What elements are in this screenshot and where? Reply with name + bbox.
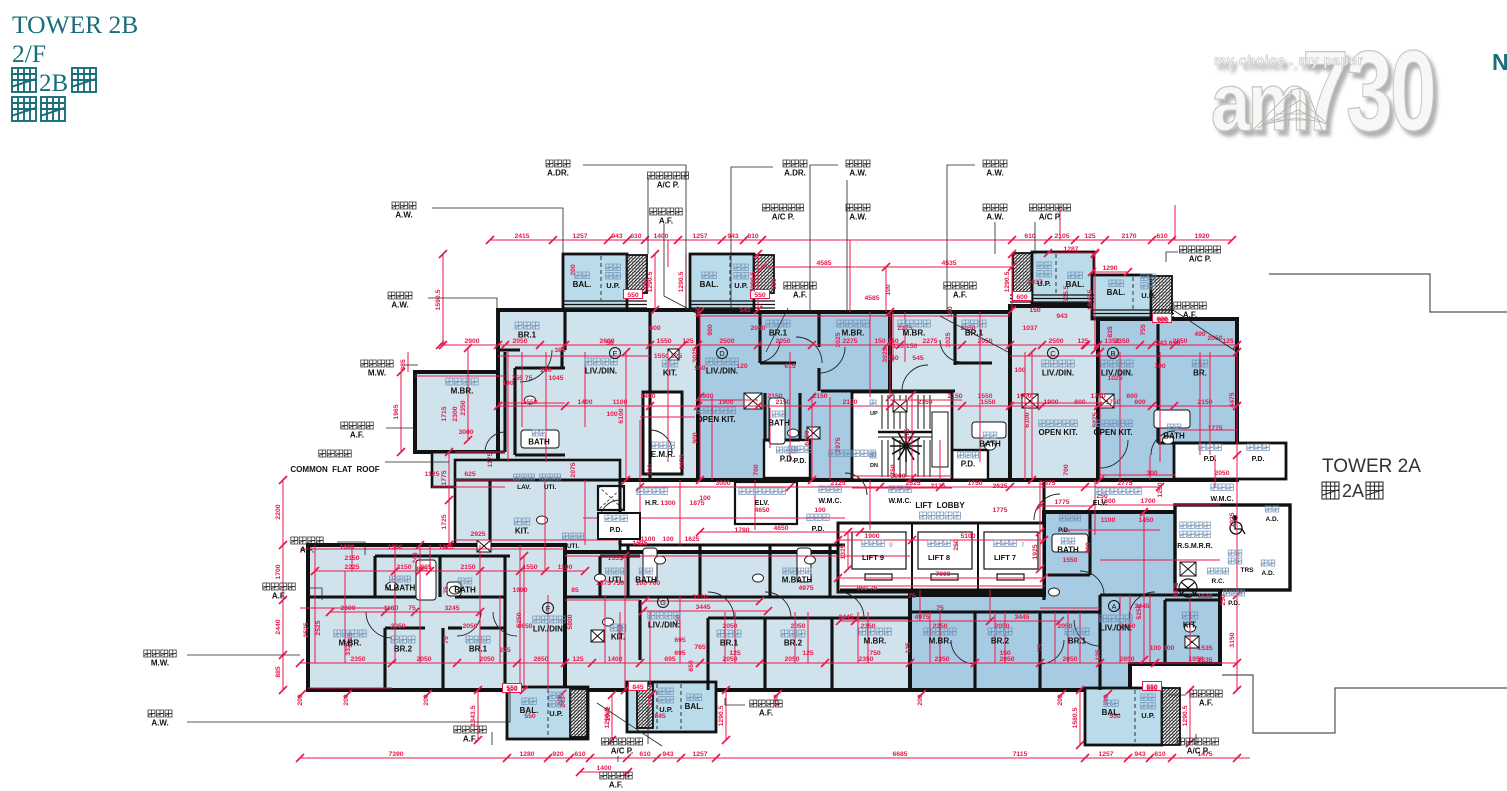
svg-text:A.W.: A.W. [849,213,866,222]
svg-text:2150: 2150 [775,399,790,406]
svg-text:610: 610 [747,233,759,240]
svg-text:TOWER 2B: TOWER 2B [12,10,138,39]
svg-text:1100: 1100 [1101,517,1116,524]
svg-text:1580.5: 1580.5 [1072,707,1079,728]
svg-text:ELV.: ELV. [755,500,769,507]
svg-text:B: B [1110,349,1115,358]
svg-text:KIT.: KIT. [515,527,529,536]
svg-text:BR.: BR. [1193,369,1207,378]
svg-text:100: 100 [1014,367,1026,374]
svg-text:2050: 2050 [750,325,765,332]
svg-text:A/C P.: A/C P. [1189,255,1212,264]
svg-text:550: 550 [627,292,639,299]
svg-text:P.D.: P.D. [1228,600,1240,607]
svg-text:UP: UP [870,411,878,417]
svg-text:1280: 1280 [519,751,534,758]
svg-text:BR.1: BR.1 [518,331,537,340]
svg-text:700: 700 [753,464,760,476]
svg-text:4650: 4650 [754,507,769,514]
svg-text:200: 200 [343,694,350,706]
svg-text:8: 8 [955,542,959,549]
svg-text:75: 75 [408,605,416,612]
svg-text:2650: 2650 [517,623,532,630]
svg-text:2350: 2350 [460,400,467,415]
svg-text:2500: 2500 [719,338,734,345]
svg-text:1920: 1920 [1194,233,1209,240]
svg-text:P.D.: P.D. [794,458,807,465]
svg-text:1965: 1965 [393,404,400,419]
svg-text:A.F.: A.F. [1199,699,1213,708]
svg-text:1290.5: 1290.5 [718,705,725,726]
svg-text:1287: 1287 [1063,246,1078,253]
svg-text:2350: 2350 [1114,338,1129,345]
svg-text:UTI.: UTI. [608,576,623,585]
svg-text:610: 610 [574,751,586,758]
svg-text:M.BR.: M.BR. [451,387,474,396]
svg-text:85: 85 [571,587,579,594]
svg-text:2975: 2975 [679,454,686,469]
svg-text:ELV.: ELV. [1093,500,1107,507]
svg-text:1550: 1550 [1062,557,1077,564]
svg-text:125: 125 [729,650,741,657]
svg-text:N: N [1492,49,1507,75]
svg-text:4650: 4650 [773,525,788,532]
svg-text:BR.1: BR.1 [469,645,488,654]
svg-text:A.F.: A.F. [272,592,286,601]
svg-text:COMMON FLAT ROOF: COMMON FLAT ROOF [290,465,379,474]
svg-text:BAL.: BAL. [700,280,719,289]
svg-text:UTI.: UTI. [544,484,556,491]
svg-text:LIV./DIN.: LIV./DIN. [585,367,617,376]
svg-text:BAL.: BAL. [1066,280,1085,289]
svg-text:1257: 1257 [572,233,587,240]
svg-text:1450: 1450 [1138,517,1153,524]
svg-text:P.D.: P.D. [1058,527,1070,534]
svg-text:A.W.: A.W. [395,211,412,220]
svg-text:200: 200 [297,694,304,706]
svg-text:M.BATH: M.BATH [782,576,813,585]
svg-text:2050: 2050 [1062,656,1077,663]
svg-text:1700: 1700 [275,564,282,579]
svg-text:1257: 1257 [1098,751,1113,758]
svg-text:2150: 2150 [396,564,411,571]
svg-text:1700: 1700 [1140,498,1155,505]
svg-text:1750: 1750 [967,480,982,487]
svg-text:7: 7 [1021,542,1025,549]
svg-text:625: 625 [464,471,476,478]
svg-text:960 75: 960 75 [857,585,878,592]
svg-text:A/C P.: A/C P. [657,181,680,190]
svg-text:BATH: BATH [454,586,476,595]
svg-text:2050: 2050 [999,656,1014,663]
svg-text:100: 100 [947,306,954,318]
svg-text:75: 75 [936,605,944,612]
svg-text:M.BR.: M.BR. [929,637,952,646]
svg-text:M.W.: M.W. [368,369,386,378]
svg-text:1500: 1500 [387,544,402,551]
svg-text:943: 943 [1056,313,1068,320]
svg-text:1775: 1775 [992,507,1007,514]
svg-text:1037: 1037 [1022,325,1037,332]
svg-text:200: 200 [570,264,577,276]
svg-text:1300: 1300 [660,500,675,507]
svg-text:2300: 2300 [452,406,459,421]
svg-text:900: 900 [692,432,699,444]
svg-text:BAL.: BAL. [573,280,592,289]
svg-text:200: 200 [647,694,654,706]
svg-text:6100: 6100 [1024,412,1031,427]
svg-text:550: 550 [694,365,706,372]
svg-text:1900: 1900 [698,393,713,400]
svg-text:4585: 4585 [816,260,831,267]
svg-text:243: 243 [412,552,419,564]
svg-text:2150: 2150 [812,393,827,400]
svg-text:2050: 2050 [722,656,737,663]
svg-text:C: C [1050,349,1056,358]
svg-text:100: 100 [506,686,518,693]
svg-text:150: 150 [874,338,886,345]
svg-text:125: 125 [682,338,694,345]
svg-text:G: G [660,598,666,607]
svg-text:1257: 1257 [692,233,707,240]
svg-text:2150: 2150 [947,393,962,400]
svg-text:2650: 2650 [1119,656,1134,663]
svg-text:BR.2: BR.2 [991,637,1010,646]
svg-text:2415: 2415 [514,233,529,240]
svg-text:2500: 2500 [1048,338,1063,345]
svg-text:1780: 1780 [734,527,749,534]
svg-text:2440: 2440 [275,619,282,634]
svg-text:am: am [1211,57,1308,148]
svg-text:U.P.: U.P. [606,281,620,290]
svg-text:TRS: TRS [1241,567,1255,574]
svg-text:7115: 7115 [1013,751,1028,758]
svg-text:2170: 2170 [1121,233,1136,240]
svg-text:600: 600 [1134,399,1146,406]
svg-text:BATH: BATH [1163,432,1185,441]
svg-text:2075: 2075 [570,462,577,477]
svg-text:1100: 1100 [641,536,656,543]
svg-text:900: 900 [1085,542,1092,554]
svg-text:1900: 1900 [718,399,733,406]
svg-text:6100: 6100 [618,408,625,423]
svg-text:75: 75 [443,636,450,644]
svg-text:4475: 4475 [1229,392,1236,407]
svg-text:P.D.: P.D. [1204,456,1217,463]
svg-text:200: 200 [1057,694,1064,706]
svg-text:943: 943 [727,233,739,240]
svg-text:610: 610 [630,233,642,240]
svg-text:1180: 1180 [384,605,399,612]
svg-text:1990: 1990 [512,587,527,594]
svg-text:LIFT 8: LIFT 8 [928,553,950,562]
svg-text:610: 610 [1156,233,1168,240]
svg-text:750: 750 [869,650,881,657]
svg-text:150: 150 [887,355,899,362]
svg-text:1535: 1535 [1197,657,1212,664]
svg-text:P.D.: P.D. [780,455,795,464]
svg-text:300: 300 [1146,470,1158,477]
svg-text:OPEN KIT.: OPEN KIT. [696,415,735,424]
svg-text:730: 730 [1302,28,1434,155]
svg-text:my choice . my paper: my choice . my paper [1214,53,1363,68]
svg-text:LIFT 7: LIFT 7 [994,553,1016,562]
svg-text:2525: 2525 [315,620,322,635]
svg-text:M.BATH: M.BATH [385,584,416,593]
svg-text:4535: 4535 [941,260,956,267]
svg-text:A.W.: A.W. [986,213,1003,222]
svg-text:50: 50 [606,340,614,347]
svg-text:650: 650 [688,660,695,672]
svg-text:615: 615 [784,363,796,370]
svg-text:3445: 3445 [1134,603,1149,610]
svg-text:1400: 1400 [596,765,611,772]
svg-text:1257: 1257 [692,751,707,758]
svg-text:3445: 3445 [838,614,853,621]
svg-text:2650: 2650 [533,656,548,663]
svg-text:A.F.: A.F. [609,781,623,790]
svg-text:200: 200 [540,367,552,374]
svg-text:3025: 3025 [692,347,699,362]
svg-text:100: 100 [885,284,892,296]
svg-text:2350: 2350 [932,623,947,630]
svg-text:1900: 1900 [1043,399,1058,406]
svg-text:2625: 2625 [992,483,1007,490]
svg-text:845: 845 [654,713,666,720]
svg-text:5100: 5100 [960,533,975,540]
svg-text:1200: 1200 [1157,482,1164,497]
svg-text:W.M.C.: W.M.C. [1211,496,1234,503]
svg-text:1775: 1775 [1054,499,1069,506]
svg-text:2225: 2225 [344,564,359,571]
svg-text:A/C P.: A/C P. [1039,213,1062,222]
svg-text:KIT.: KIT. [663,369,677,378]
svg-text:BATH: BATH [1057,546,1079,555]
svg-text:200: 200 [423,694,430,706]
svg-text:3000: 3000 [458,429,473,436]
svg-text:BAL.: BAL. [520,706,539,715]
svg-text:3245: 3245 [444,605,459,612]
svg-text:125: 125 [572,656,584,663]
svg-text:1775: 1775 [441,470,448,485]
svg-text:7390: 7390 [388,751,403,758]
svg-text:F: F [546,604,551,613]
svg-text:U.P.: U.P. [1141,711,1155,720]
svg-text:2350: 2350 [860,623,875,630]
svg-text:M.W.: M.W. [151,659,169,668]
svg-text:610: 610 [1154,751,1166,758]
svg-text:TOWER 2A: TOWER 2A [1322,456,1421,477]
svg-text:2350: 2350 [858,656,873,663]
svg-text:2050: 2050 [416,656,431,663]
svg-text:W.M.C.: W.M.C. [889,498,912,505]
svg-text:900: 900 [707,324,714,336]
svg-text:125: 125 [802,650,814,657]
svg-text:545: 545 [912,355,924,362]
svg-text:R.C.: R.C. [1212,578,1225,585]
svg-text:1400: 1400 [607,656,622,663]
svg-text:LIV./DIN.: LIV./DIN. [1101,369,1133,378]
svg-text:700: 700 [647,464,654,476]
svg-text:75: 75 [443,586,450,594]
svg-text:P.D.: P.D. [961,460,976,469]
svg-text:1590.5: 1590.5 [435,289,442,310]
svg-text:835: 835 [1107,326,1114,338]
svg-text:943 610: 943 610 [1156,340,1181,347]
svg-text:2275: 2275 [922,338,937,345]
svg-text:LIV./DIN.: LIV./DIN. [1042,369,1074,378]
svg-text:1900: 1900 [1016,393,1031,400]
svg-text:695: 695 [674,650,686,657]
svg-text:KIT.: KIT. [611,633,625,642]
svg-text:2925: 2925 [470,531,485,538]
svg-text:M.BR.: M.BR. [339,639,362,648]
svg-text:LIFT 9: LIFT 9 [862,553,884,562]
svg-text:700: 700 [1063,464,1070,476]
svg-text:600: 600 [1157,317,1169,324]
svg-text:1400: 1400 [640,393,655,400]
svg-text:2150: 2150 [460,564,475,571]
svg-text:2050: 2050 [775,338,790,345]
svg-text:2A: 2A [1342,481,1364,501]
svg-text:BATH: BATH [979,440,1001,449]
svg-text:DN: DN [870,463,878,469]
svg-text:1343.5: 1343.5 [470,705,477,726]
svg-text:5800: 5800 [567,614,574,629]
svg-text:943: 943 [611,233,623,240]
svg-text:600: 600 [643,278,650,290]
svg-text:2125: 2125 [930,483,945,490]
svg-text:U.P.: U.P. [1037,279,1051,288]
svg-text:150: 150 [1029,307,1041,314]
svg-text:M.BR.: M.BR. [903,329,926,338]
svg-text:W.M.C.: W.M.C. [819,498,842,505]
svg-text:100: 100 [662,536,674,543]
svg-text:1550: 1550 [980,399,995,406]
svg-text:2875: 2875 [1040,480,1055,487]
svg-text:2150: 2150 [767,393,782,400]
svg-text:1725: 1725 [441,514,448,529]
svg-text:100: 100 [1154,363,1166,370]
svg-text:LIV./DIN.: LIV./DIN. [648,621,680,630]
svg-text:3000: 3000 [715,480,730,487]
svg-text:2075: 2075 [904,428,911,443]
svg-text:1525: 1525 [1197,593,1212,600]
svg-text:2050: 2050 [722,623,737,630]
svg-text:600: 600 [1074,399,1086,406]
svg-text:A.D.: A.D. [1266,516,1279,523]
svg-text:2B: 2B [39,70,68,97]
svg-text:750: 750 [890,464,897,476]
svg-text:600: 600 [1126,393,1138,400]
svg-text:1175: 1175 [487,452,494,467]
svg-text:1715: 1715 [441,406,448,421]
svg-text:845: 845 [632,684,644,691]
svg-text:BAL.: BAL. [1102,708,1121,717]
svg-text:100 300: 100 300 [1150,645,1175,652]
svg-text:A: A [1111,602,1116,611]
svg-text:150: 150 [695,306,702,318]
svg-text:125: 125 [1095,649,1102,661]
svg-text:2105: 2105 [1054,233,1069,240]
svg-text:P.D.: P.D. [610,527,623,534]
svg-text:943: 943 [1134,751,1146,758]
svg-text:550: 550 [771,278,778,290]
svg-text:1750: 1750 [1090,393,1105,400]
svg-text:A.W.: A.W. [151,719,168,728]
svg-text:150: 150 [999,650,1011,657]
svg-text:2525: 2525 [303,622,310,637]
svg-text:A.F.: A.F. [793,291,807,300]
svg-text:A.W.: A.W. [986,169,1003,178]
svg-text:6685: 6685 [892,751,907,758]
svg-text:2050: 2050 [977,338,992,345]
svg-text:75: 75 [1037,644,1044,652]
svg-text:2900: 2900 [464,338,479,345]
svg-text:610: 610 [639,751,651,758]
svg-text:1290.5: 1290.5 [678,271,685,292]
svg-text:885: 885 [275,666,282,678]
svg-text:2350: 2350 [934,656,949,663]
svg-text:755 75: 755 75 [512,375,533,382]
svg-text:BATH: BATH [768,419,790,428]
svg-text:4975: 4975 [798,585,813,592]
svg-text:BAL.: BAL. [685,702,704,711]
svg-text:1400: 1400 [653,233,668,240]
svg-text:A.F.: A.F. [659,217,673,226]
svg-text:2150: 2150 [917,399,932,406]
svg-text:1925: 1925 [1229,512,1236,527]
svg-text:1605.5: 1605.5 [1087,289,1094,310]
svg-text:600: 600 [649,325,661,332]
svg-text:A.W.: A.W. [849,169,866,178]
svg-text:E: E [612,349,617,358]
svg-text:100: 100 [606,411,618,418]
svg-text:2600: 2600 [340,605,355,612]
svg-text:A.D.: A.D. [1262,570,1275,577]
svg-text:M.BR.: M.BR. [842,329,865,338]
svg-text:490: 490 [1194,331,1206,338]
svg-text:BR.2: BR.2 [394,645,413,654]
svg-text:1290.5: 1290.5 [750,271,757,292]
svg-text:U.P.: U.P. [1141,291,1155,300]
svg-text:LIV./DIN.: LIV./DIN. [1100,624,1132,633]
svg-text:R.S.M.R.R.: R.S.M.R.R. [1177,543,1212,550]
svg-text:2050: 2050 [784,656,799,663]
svg-text:3150: 3150 [1229,632,1236,647]
svg-text:2050: 2050 [479,656,494,663]
svg-text:P.D.: P.D. [812,526,825,533]
svg-text:7000: 7000 [935,571,950,578]
svg-text:U.P.: U.P. [659,705,673,714]
svg-text:M.BR.: M.BR. [864,637,887,646]
svg-text:1100: 1100 [558,564,573,571]
svg-text:545: 545 [739,307,751,314]
svg-text:2150: 2150 [1197,399,1212,406]
svg-text:UTI.: UTI. [567,543,579,550]
svg-text:695: 695 [664,656,676,663]
svg-text:2050: 2050 [390,623,405,630]
svg-text:100: 100 [699,495,711,502]
svg-text:920: 920 [552,751,564,758]
svg-text:1555: 1555 [607,555,622,562]
svg-text:2350: 2350 [350,656,365,663]
svg-text:1600: 1600 [339,544,354,551]
svg-text:1550: 1550 [522,564,537,571]
svg-text:9: 9 [889,542,893,549]
svg-text:BR.1: BR.1 [1068,637,1087,646]
svg-text:6100: 6100 [804,430,811,445]
